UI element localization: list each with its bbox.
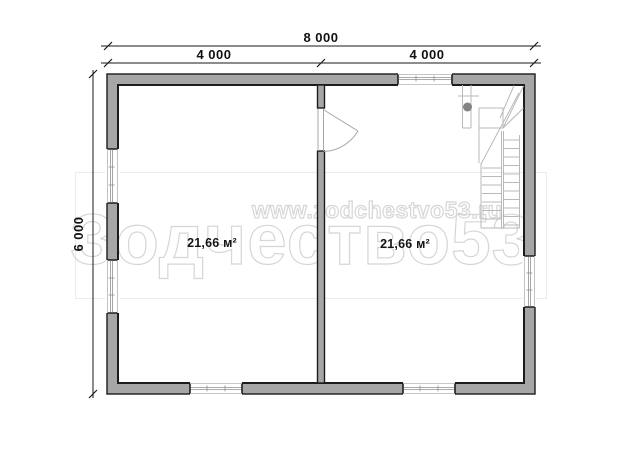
newel-post-icon <box>463 103 472 112</box>
dim-overall-width: 8 000 <box>281 31 361 45</box>
window-left-lower <box>106 260 120 313</box>
dim-half-width-right: 4 000 <box>387 48 467 62</box>
dim-half-width-left: 4 000 <box>174 48 254 62</box>
window-bottom-right <box>403 382 455 396</box>
room-area-left: 21,66 м² <box>152 236 272 250</box>
staircase <box>458 85 524 228</box>
room-area-right: 21,66 м² <box>345 237 465 251</box>
window-top <box>398 73 452 87</box>
floor-plan-page: www.zodchestvo53.ru Зодчество53 <box>0 0 640 470</box>
floor-plan-drawing <box>0 0 640 470</box>
dimension-lines <box>89 42 541 398</box>
window-bottom-left <box>190 382 242 396</box>
window-right <box>523 256 537 307</box>
door <box>318 109 358 152</box>
dim-overall-height: 6 000 <box>72 194 86 274</box>
window-left-upper <box>106 149 120 203</box>
